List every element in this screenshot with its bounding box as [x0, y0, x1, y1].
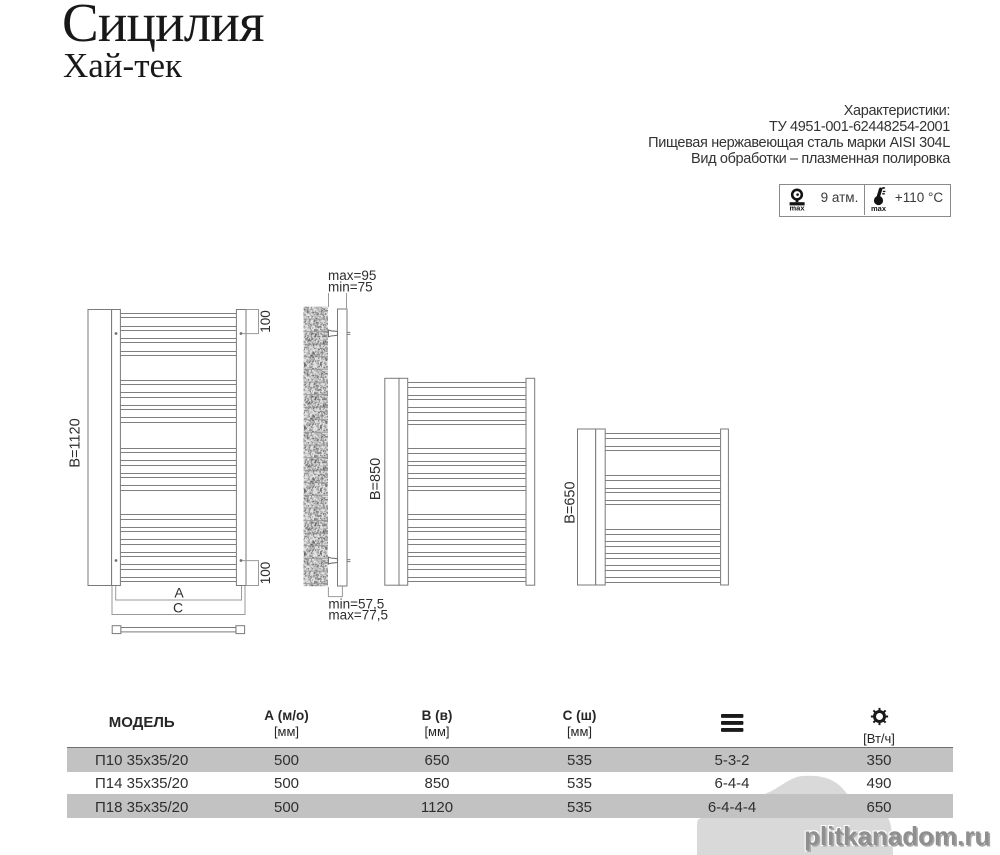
- svg-text:А: А: [174, 584, 184, 600]
- svg-text:100: 100: [258, 562, 273, 585]
- svg-text:100: 100: [258, 310, 273, 333]
- svg-text:B=650: B=650: [563, 481, 579, 523]
- svg-text:min=75: min=75: [328, 279, 373, 294]
- svg-text:B=1120: B=1120: [68, 418, 84, 467]
- svg-text:max=77,5: max=77,5: [328, 608, 388, 623]
- svg-text:С: С: [173, 599, 183, 615]
- svg-text:B=850: B=850: [368, 458, 384, 500]
